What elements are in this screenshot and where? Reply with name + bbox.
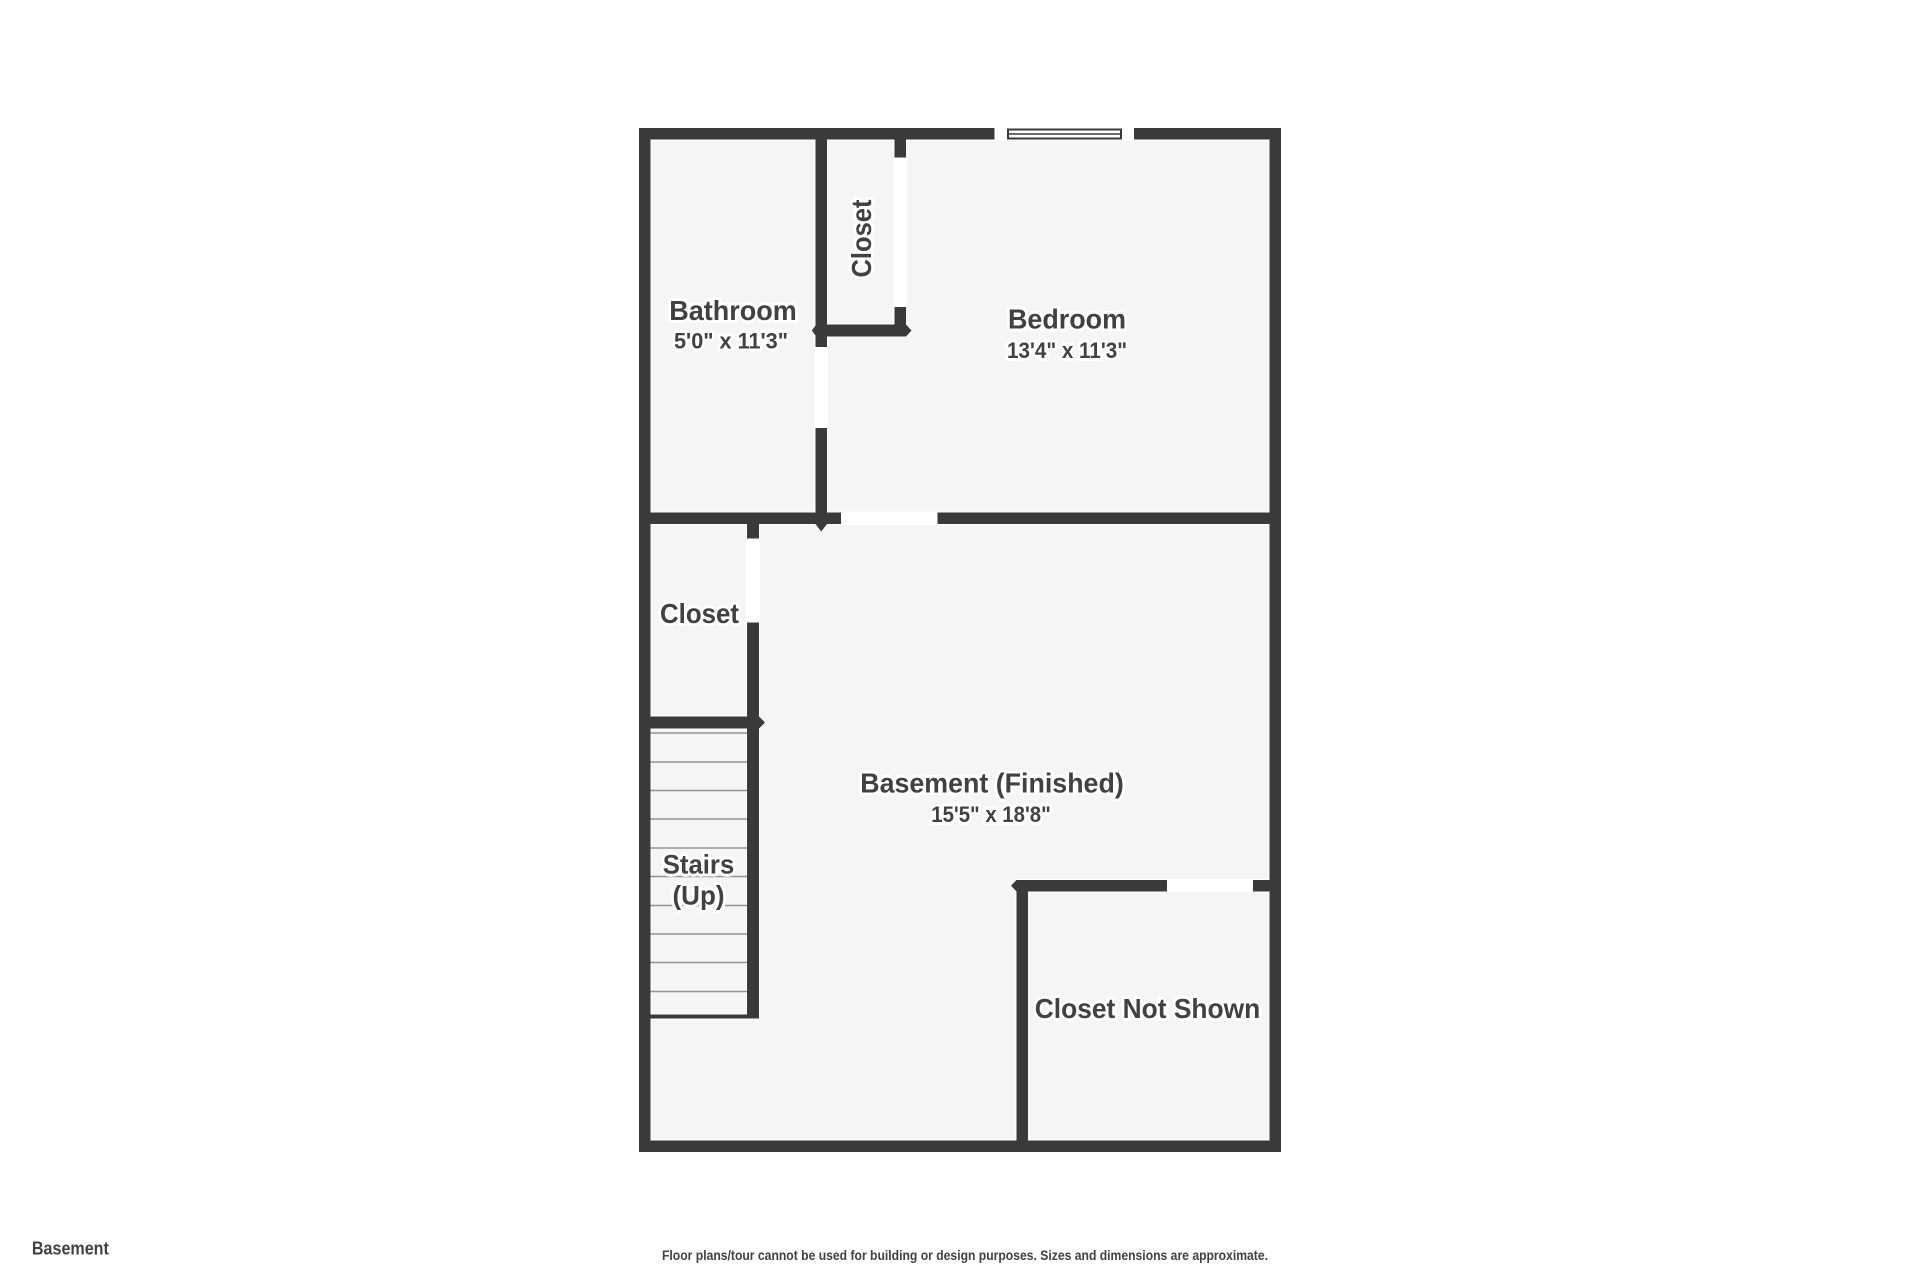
svg-text:Closet: Closet xyxy=(846,200,877,278)
svg-text:Basement: Basement xyxy=(32,1239,109,1259)
svg-text:Bedroom: Bedroom xyxy=(1008,304,1126,335)
svg-text:5'0" x 11'3": 5'0" x 11'3" xyxy=(674,329,788,354)
svg-text:Closet: Closet xyxy=(660,598,739,629)
svg-text:Stairs: Stairs xyxy=(663,850,735,880)
svg-text:15'5" x 18'8": 15'5" x 18'8" xyxy=(931,802,1051,827)
svg-text:13'4" x 11'3": 13'4" x 11'3" xyxy=(1007,338,1127,363)
svg-text:Bathroom: Bathroom xyxy=(669,295,797,326)
svg-text:Floor plans/tour cannot be use: Floor plans/tour cannot be used for buil… xyxy=(662,1247,1268,1263)
svg-text:(Up): (Up) xyxy=(673,881,725,911)
svg-text:Closet Not Shown: Closet Not Shown xyxy=(1035,993,1261,1024)
svg-text:Basement (Finished): Basement (Finished) xyxy=(860,768,1124,799)
